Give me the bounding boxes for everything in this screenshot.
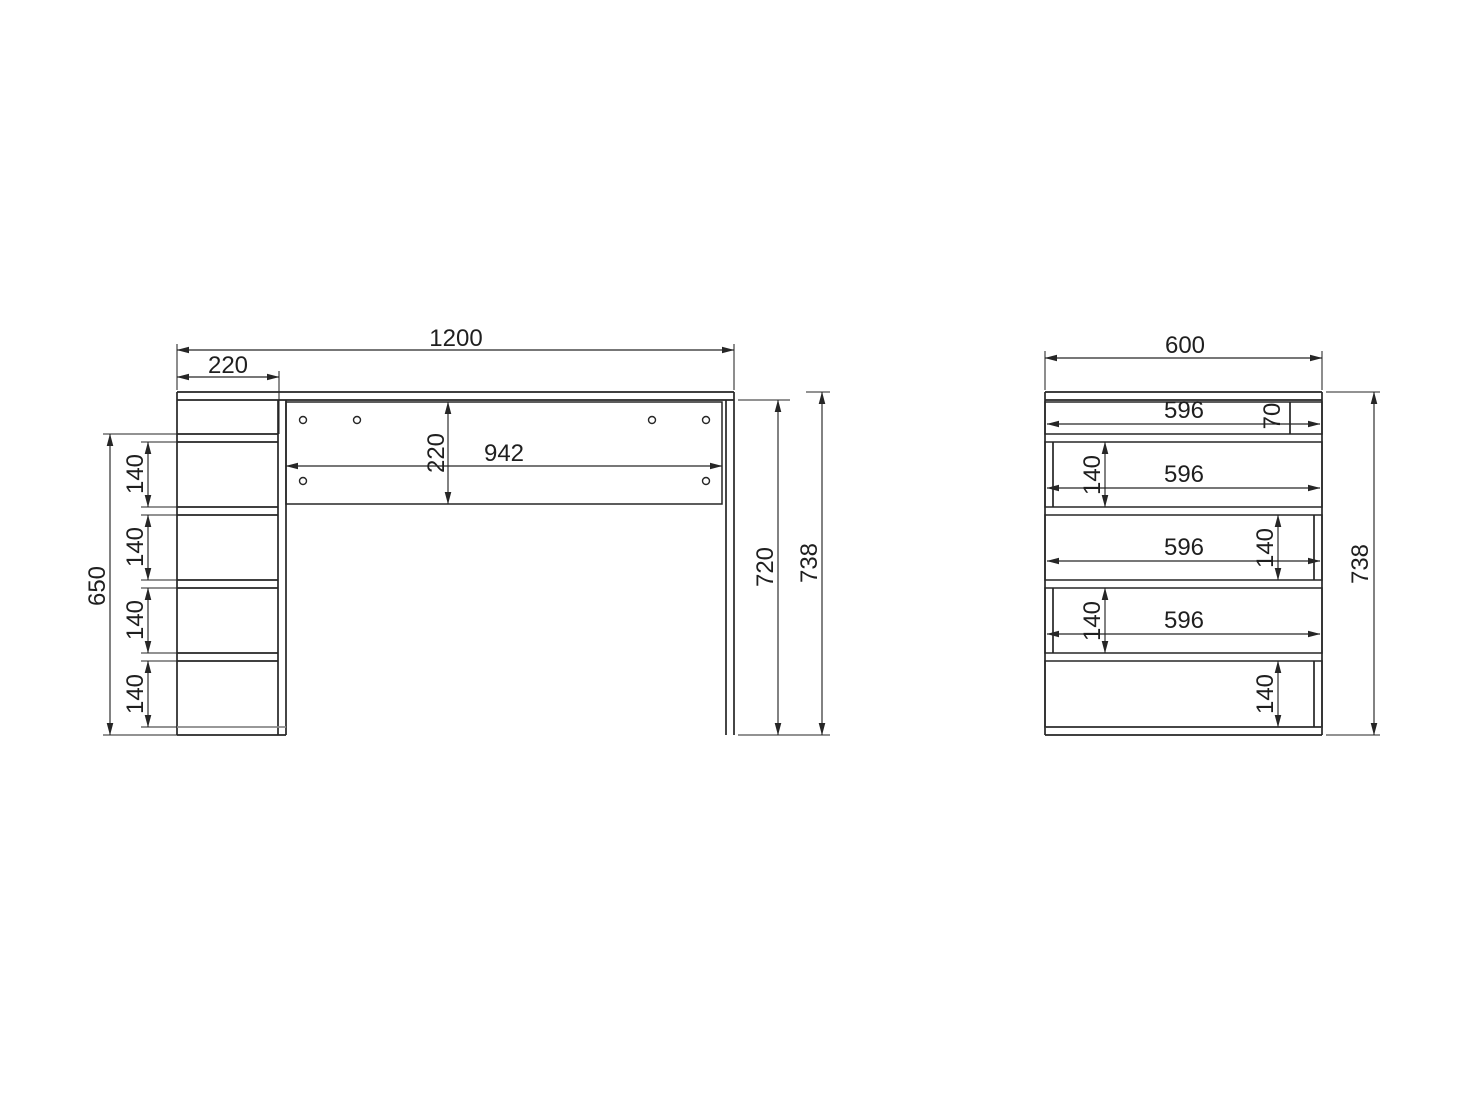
dim-column-width: 220 bbox=[177, 352, 279, 434]
dim-label-shelf-spacing: 140 bbox=[1079, 601, 1106, 641]
dim-label-total-depth: 600 bbox=[1165, 332, 1205, 359]
dim-label-apron-height: 220 bbox=[423, 433, 450, 473]
screw-hole bbox=[703, 417, 710, 424]
side-view: 600 596 596 596 596 70 140 140 140 140 bbox=[1045, 332, 1380, 735]
shelf-lines bbox=[177, 434, 278, 661]
column-side-panels bbox=[177, 392, 286, 735]
dim-label-total-height: 738 bbox=[1347, 544, 1374, 584]
dim-label-shelf-spacing: 140 bbox=[122, 600, 149, 640]
dim-label-shelf-depth: 596 bbox=[1164, 534, 1204, 561]
dim-label-column-width: 220 bbox=[208, 352, 248, 379]
screw-hole bbox=[300, 478, 307, 485]
dim-total-height-front: 738 bbox=[796, 392, 830, 735]
dim-shelf-spacings: 140 140 140 140 bbox=[122, 442, 177, 727]
dim-label-shelf-spacing: 140 bbox=[1252, 674, 1279, 714]
screw-hole bbox=[354, 417, 361, 424]
screw-hole bbox=[649, 417, 656, 424]
dim-total-depth: 600 bbox=[1045, 332, 1322, 390]
side-bands bbox=[1045, 402, 1322, 727]
dim-label-shelf-depth: 596 bbox=[1164, 397, 1204, 424]
drawing-svg: 1200 220 942 220 650 bbox=[0, 0, 1463, 1097]
dim-label-shelf-spacing: 140 bbox=[122, 674, 149, 714]
dim-label-shelf-depth: 596 bbox=[1164, 607, 1204, 634]
dim-label-shelf-spacing: 140 bbox=[1079, 455, 1106, 495]
dim-label-total-height: 738 bbox=[796, 543, 823, 583]
dim-label-shelf-spacing: 140 bbox=[122, 454, 149, 494]
dim-apron-length: 942 bbox=[286, 440, 722, 467]
dim-total-width: 1200 bbox=[177, 325, 734, 390]
dim-label-shelf-spacing: 140 bbox=[122, 527, 149, 567]
desktop-panel bbox=[177, 392, 734, 400]
screw-hole bbox=[300, 417, 307, 424]
side-panel-outline bbox=[1045, 392, 1322, 735]
dim-label-shelf-depth: 596 bbox=[1164, 461, 1204, 488]
front-view: 1200 220 942 220 650 bbox=[84, 325, 830, 735]
shelf-band bbox=[1045, 661, 1322, 727]
dim-apron-height: 220 bbox=[423, 402, 450, 504]
dim-label-column-height: 650 bbox=[84, 566, 111, 606]
screw-hole bbox=[703, 478, 710, 485]
shelf-column bbox=[177, 392, 286, 735]
dim-label-apron-length: 942 bbox=[484, 440, 524, 467]
dim-total-height-side: 738 bbox=[1326, 392, 1380, 735]
dim-label-shelf-spacing: 140 bbox=[1252, 528, 1279, 568]
dim-label-leg-height: 720 bbox=[752, 547, 779, 587]
dim-label-top-rail-depth: 70 bbox=[1259, 403, 1286, 430]
dim-label-total-width: 1200 bbox=[429, 325, 482, 352]
technical-drawing-page: 1200 220 942 220 650 bbox=[0, 0, 1463, 1097]
right-leg-panel bbox=[726, 392, 734, 735]
